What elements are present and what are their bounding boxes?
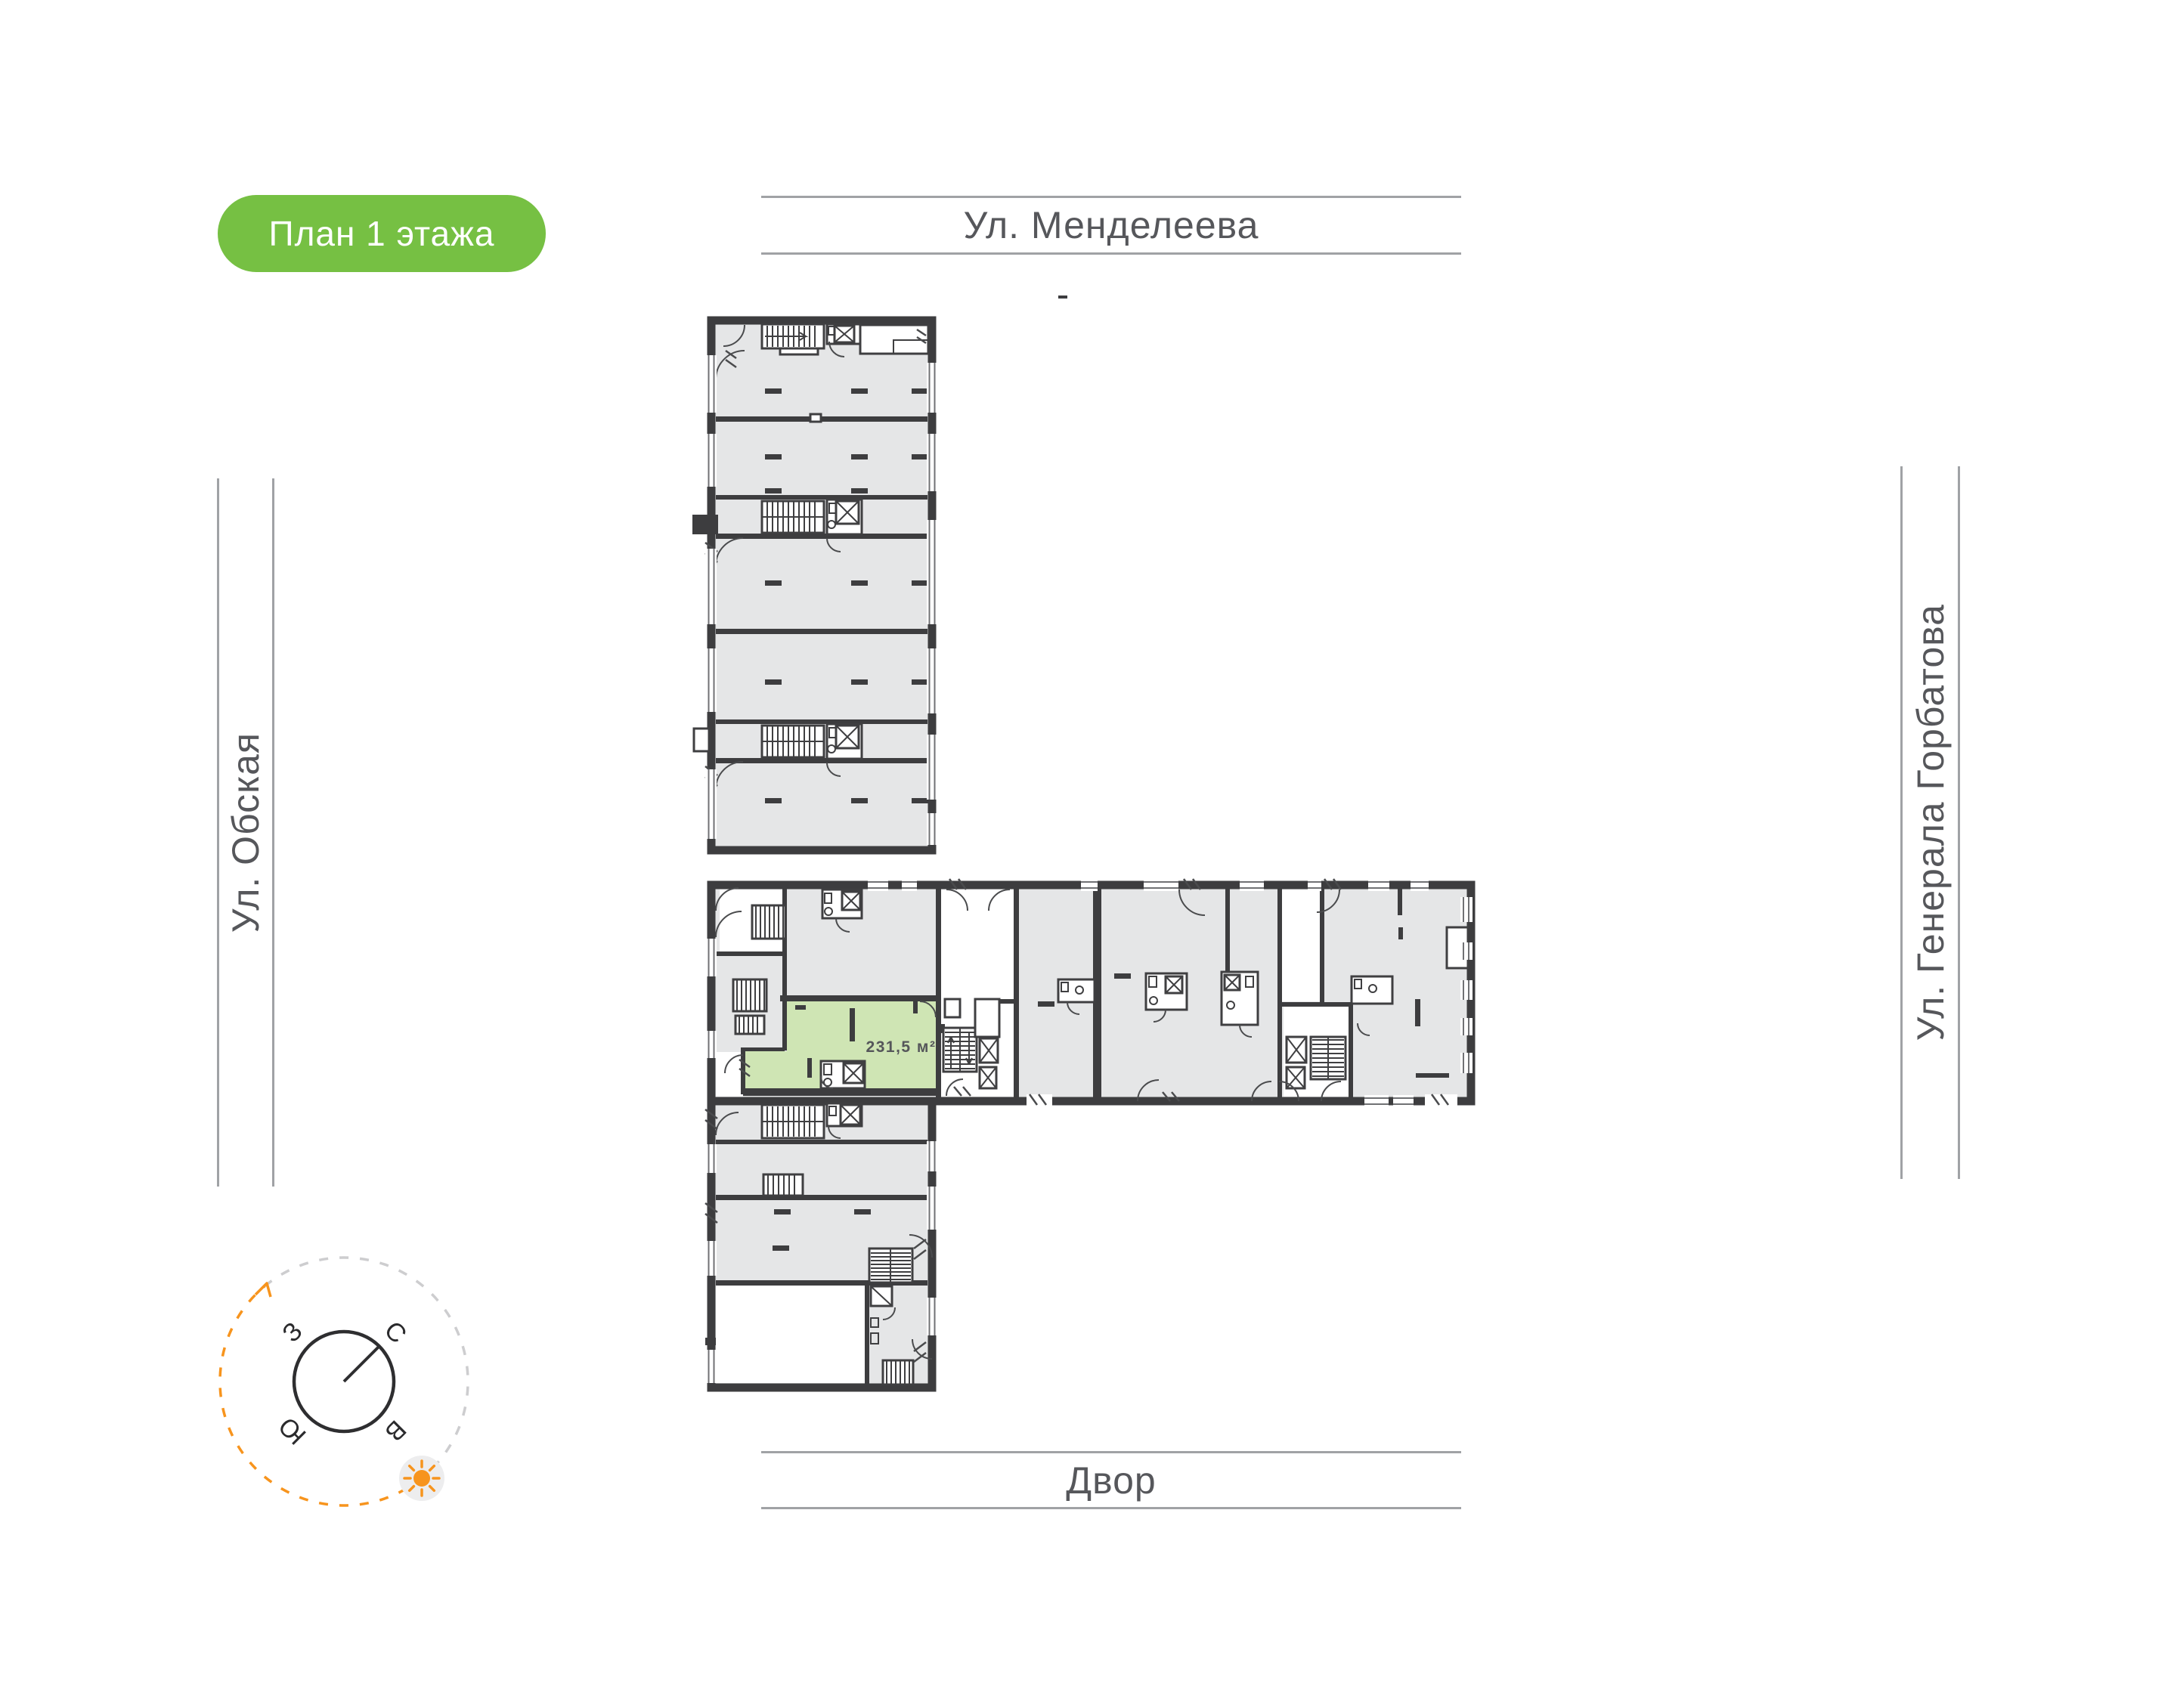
sun-icon: [399, 1456, 444, 1501]
compass: С З Ю В: [220, 1258, 468, 1505]
floor-plan: 231,5 м²: [0, 0, 2177, 1708]
compass-arrow-icon: [255, 1283, 271, 1297]
plan-tick: [1058, 295, 1067, 299]
compass-north-label: С: [379, 1316, 412, 1349]
compass-south-label: Ю: [273, 1411, 311, 1450]
page: План 1 этажа Ул. Менделеева Ул. Обская У…: [0, 0, 2177, 1708]
compass-east-label: В: [379, 1415, 412, 1447]
compass-west-label: З: [277, 1317, 308, 1348]
unit-area-label: 231,5 м²: [866, 1038, 937, 1056]
windows-north-right: [927, 363, 938, 845]
wing-south: [705, 1101, 938, 1388]
wing-center: 231,5 м²: [705, 879, 1472, 1107]
wing-north: [692, 320, 938, 850]
